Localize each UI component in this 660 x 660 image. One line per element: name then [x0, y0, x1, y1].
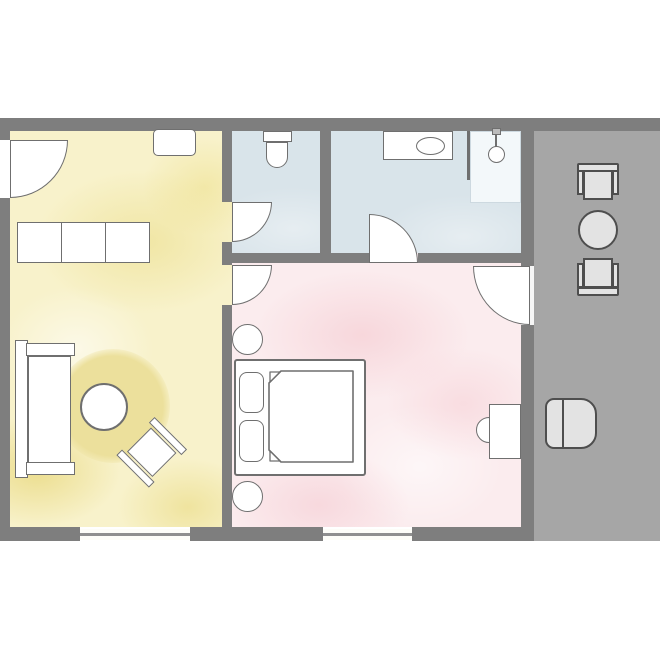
lounge-chair [545, 398, 597, 449]
terrace-chair-north-seat [583, 170, 613, 200]
nightstand-south [232, 481, 263, 512]
floor-plan [0, 0, 660, 660]
terrace-chair-south-back [577, 287, 619, 296]
shower-head [488, 146, 505, 163]
coffee-table [80, 383, 128, 431]
sofa-seat [28, 356, 71, 463]
wall-east-lower [521, 325, 534, 541]
window-glass-line [323, 533, 412, 536]
bed-pillow-left [239, 372, 264, 413]
lounge-chair-divider [562, 400, 564, 447]
toilet-bowl [266, 142, 288, 168]
wall-south-a [0, 527, 80, 541]
sideboard-section [62, 223, 106, 262]
sideboard [17, 222, 150, 263]
window-living-room [80, 529, 190, 540]
wall-south-c [412, 527, 521, 541]
window-bedroom [323, 529, 412, 540]
wall-west-lower [0, 198, 10, 541]
sink-basin [416, 137, 445, 155]
duvet-outline [269, 371, 353, 462]
terrace-chair-south-seat [583, 258, 613, 288]
wall-bath-south-b [418, 253, 521, 263]
wall-cabinet [153, 129, 196, 156]
wall-divider-living-upper [222, 131, 232, 202]
sofa-armrest-top [26, 343, 75, 356]
desk [489, 404, 521, 459]
wall-divider-living-lower [222, 305, 232, 527]
bed-duvet [268, 370, 354, 463]
terrace-chair-north-back [577, 163, 619, 172]
wall-wc-bathroom [320, 131, 331, 253]
sofa-armrest-bottom [26, 462, 75, 475]
sideboard-section [106, 223, 149, 262]
nightstand-north [232, 324, 263, 355]
bed-pillow-right [239, 420, 264, 462]
terrace-table [578, 210, 618, 250]
window-glass-line [80, 533, 190, 536]
wall-south-b [190, 527, 323, 541]
terrace-chair-south-arm-right [612, 263, 619, 288]
sideboard-section [18, 223, 62, 262]
toilet-tank [263, 131, 292, 142]
wall-north [0, 118, 660, 131]
terrace-chair-north-arm-right [612, 170, 619, 195]
sofa-back [15, 340, 28, 478]
wall-bath-south-a [222, 253, 369, 263]
wall-west-upper [0, 131, 10, 140]
wall-east-upper [521, 131, 534, 266]
